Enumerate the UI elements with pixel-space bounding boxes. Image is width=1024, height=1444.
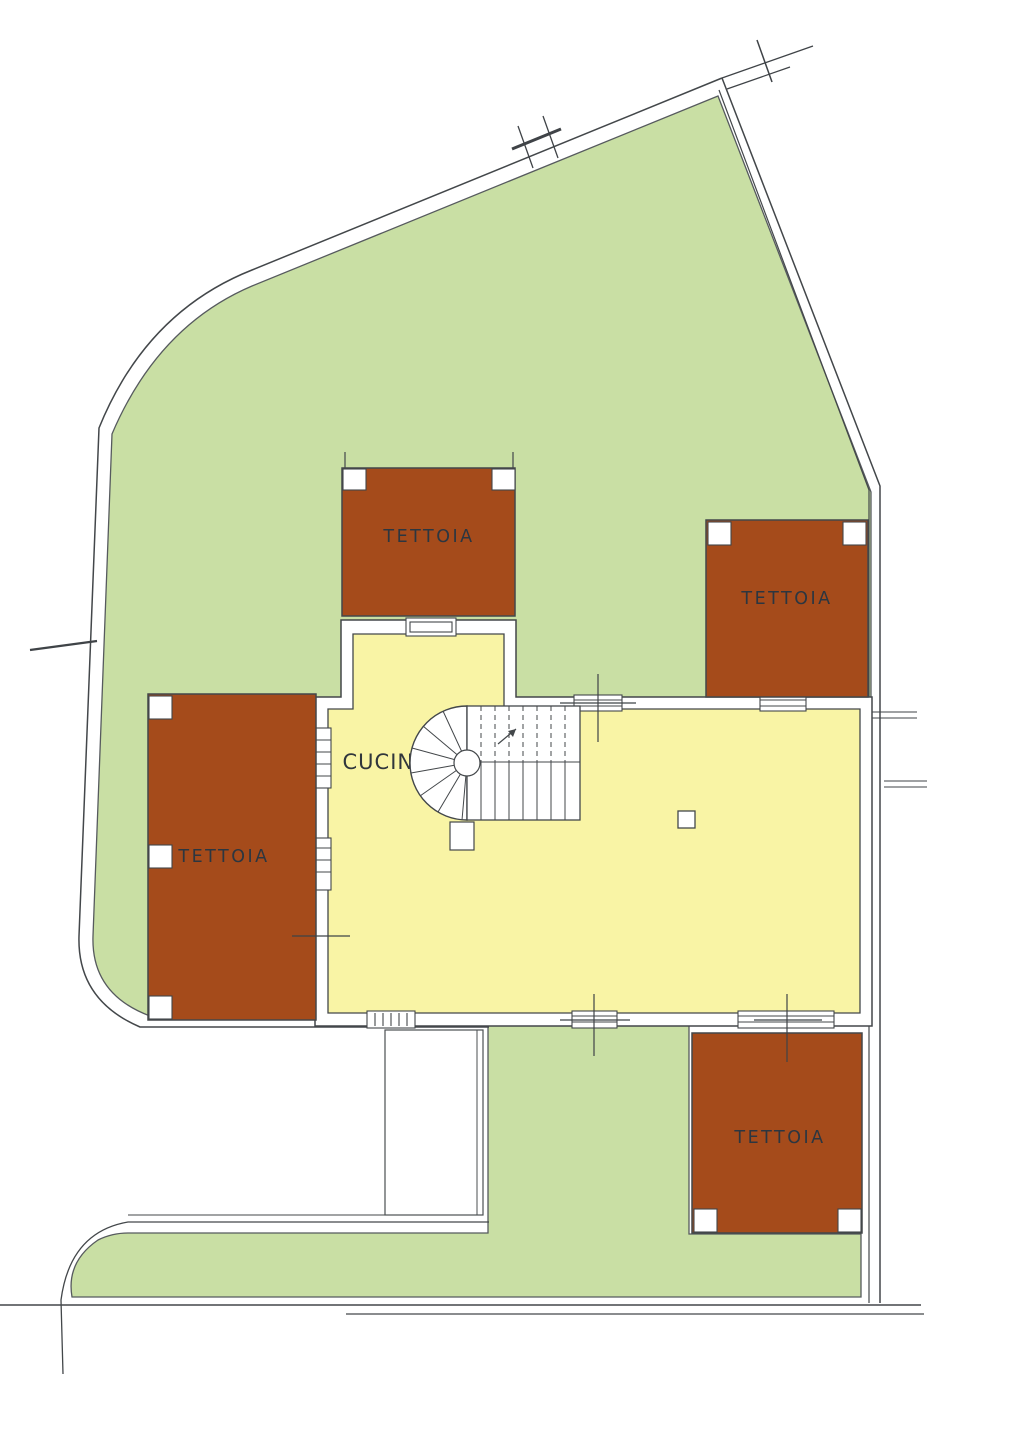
canopy-west-label: TETTOIA xyxy=(177,847,269,867)
canopy-south-label: TETTOIA xyxy=(733,1128,825,1148)
canopy-south: TETTOIA xyxy=(692,1033,862,1233)
canopy-south-post-left xyxy=(694,1209,717,1232)
gate-corner-extension-line xyxy=(722,46,813,78)
site-plan-drawing: CUCINA TETTOIA TETTOIA TETTOIA xyxy=(0,0,1024,1444)
canopy-east: TETTOIA xyxy=(706,520,868,697)
canopy-west-post-top xyxy=(149,696,172,719)
stair-center-post xyxy=(454,750,480,776)
canopy-west-post-mid xyxy=(149,845,172,868)
canopy-west: TETTOIA xyxy=(148,694,316,1020)
canopy-east-post-right xyxy=(843,522,866,545)
stair-lower-stub xyxy=(450,822,474,850)
canopy-north-post-right xyxy=(492,469,515,490)
canopy-east-label: TETTOIA xyxy=(740,589,832,609)
site-plan-page: CUCINA TETTOIA TETTOIA TETTOIA xyxy=(0,0,1024,1444)
canopy-north-post-left xyxy=(343,469,366,490)
canopy-north: TETTOIA xyxy=(342,452,515,616)
gate-corner-parallel-line xyxy=(727,67,790,89)
canopy-north-label: TETTOIA xyxy=(382,527,474,547)
canopy-west-post-bottom xyxy=(149,996,172,1019)
road-lines xyxy=(0,1305,924,1314)
terrace-area xyxy=(385,1030,483,1215)
canopy-south-post-right xyxy=(838,1209,861,1232)
west-boundary-tick xyxy=(30,641,97,650)
wing-top-window xyxy=(406,618,456,636)
canopy-east-post-left xyxy=(708,522,731,545)
pillar-square xyxy=(678,811,695,828)
terrace-rect xyxy=(385,1030,483,1215)
